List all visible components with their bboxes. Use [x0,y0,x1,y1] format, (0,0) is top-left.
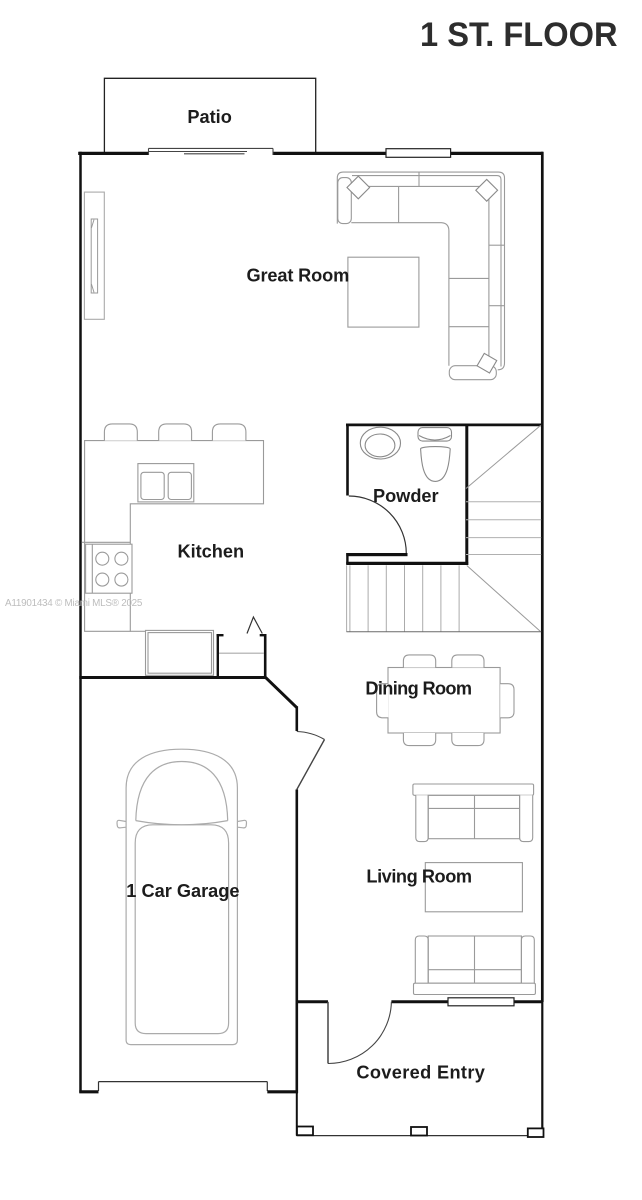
svg-text:Great Room: Great Room [247,266,350,286]
svg-text:Covered Entry: Covered Entry [356,1063,485,1083]
svg-text:Patio: Patio [187,107,231,127]
svg-text:1 ST. FLOOR: 1 ST. FLOOR [420,16,618,54]
svg-text:Powder: Powder [373,486,439,506]
svg-text:1 Car Garage: 1 Car Garage [126,881,239,901]
svg-text:Living Room: Living Room [366,867,471,887]
svg-text:A11901434 © Miami MLS® 2025: A11901434 © Miami MLS® 2025 [5,598,143,609]
svg-text:Dining Room: Dining Room [365,679,471,699]
svg-text:Kitchen: Kitchen [177,542,244,562]
